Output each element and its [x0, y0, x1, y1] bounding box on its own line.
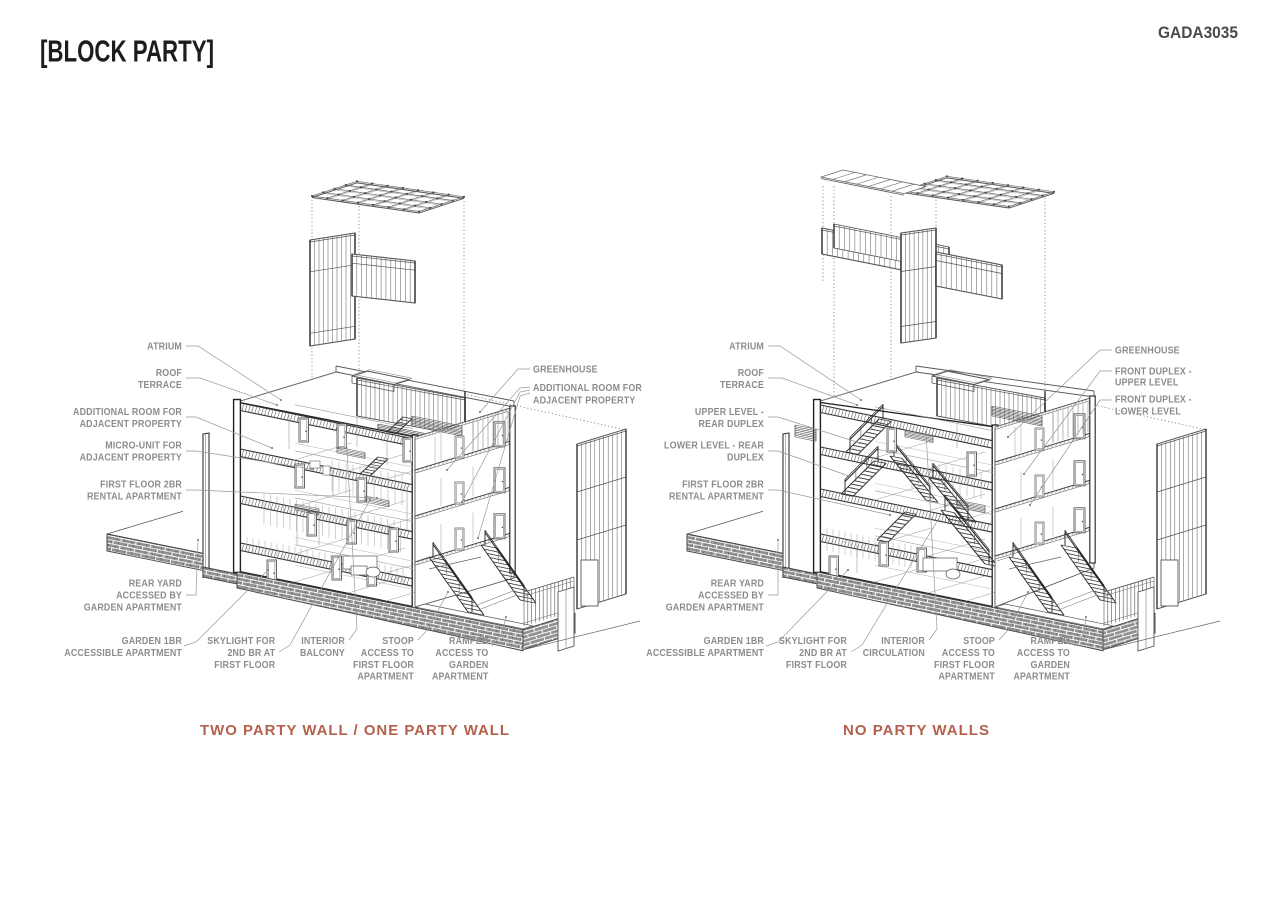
svg-text:SKYLIGHT FOR: SKYLIGHT FOR	[207, 636, 275, 648]
svg-text:REAR YARD: REAR YARD	[711, 578, 764, 590]
svg-text:APARTMENT: APARTMENT	[357, 671, 414, 683]
svg-text:2ND BR AT: 2ND BR AT	[227, 647, 275, 659]
svg-text:ADDITIONAL ROOM FOR: ADDITIONAL ROOM FOR	[73, 407, 182, 419]
svg-text:INTERIOR: INTERIOR	[881, 636, 925, 648]
svg-text:STOOP: STOOP	[963, 636, 995, 648]
svg-text:FIRST FLOOR: FIRST FLOOR	[934, 659, 995, 671]
svg-text:FIRST FLOOR: FIRST FLOOR	[214, 659, 275, 671]
svg-text:MICRO-UNIT FOR: MICRO-UNIT FOR	[105, 440, 182, 452]
svg-text:GREENHOUSE: GREENHOUSE	[1115, 345, 1180, 357]
svg-text:RENTAL APARTMENT: RENTAL APARTMENT	[87, 491, 182, 503]
svg-text:[BLOCK PARTY]: [BLOCK PARTY]	[40, 34, 214, 69]
svg-text:APARTMENT: APARTMENT	[938, 671, 995, 683]
svg-text:GARDEN 1BR: GARDEN 1BR	[122, 636, 182, 648]
svg-text:FIRST FLOOR: FIRST FLOOR	[786, 659, 847, 671]
svg-text:GARDEN APARTMENT: GARDEN APARTMENT	[666, 602, 764, 614]
svg-text:ACCESS TO: ACCESS TO	[435, 647, 488, 659]
svg-text:RENTAL APARTMENT: RENTAL APARTMENT	[669, 491, 764, 503]
svg-text:ACCESSIBLE APARTMENT: ACCESSIBLE APARTMENT	[646, 647, 764, 659]
svg-text:NO PARTY WALLS: NO PARTY WALLS	[843, 722, 990, 739]
svg-text:TERRACE: TERRACE	[720, 379, 764, 391]
svg-text:ACCESSIBLE APARTMENT: ACCESSIBLE APARTMENT	[64, 647, 182, 659]
svg-text:GARDEN: GARDEN	[1031, 659, 1070, 671]
svg-text:REAR DUPLEX: REAR DUPLEX	[699, 418, 765, 430]
svg-text:ADDITIONAL ROOM FOR: ADDITIONAL ROOM FOR	[533, 383, 642, 395]
svg-text:GARDEN APARTMENT: GARDEN APARTMENT	[84, 602, 182, 614]
svg-text:CIRCULATION: CIRCULATION	[863, 647, 925, 659]
svg-text:ROOF: ROOF	[156, 368, 182, 380]
svg-text:ACCESSED BY: ACCESSED BY	[698, 590, 764, 602]
svg-text:BALCONY: BALCONY	[300, 647, 345, 659]
svg-text:ACCESS TO: ACCESS TO	[361, 647, 414, 659]
svg-text:APARTMENT: APARTMENT	[1013, 671, 1070, 683]
svg-text:ADJACENT PROPERTY: ADJACENT PROPERTY	[80, 452, 183, 464]
svg-text:ATRIUM: ATRIUM	[729, 341, 764, 353]
svg-text:FRONT DUPLEX -: FRONT DUPLEX -	[1115, 394, 1192, 406]
svg-text:ACCESS TO: ACCESS TO	[1017, 647, 1070, 659]
svg-text:ADJACENT PROPERTY: ADJACENT PROPERTY	[533, 395, 636, 407]
svg-text:ATRIUM: ATRIUM	[147, 341, 182, 353]
svg-text:UPPER LEVEL -: UPPER LEVEL -	[695, 407, 764, 419]
svg-text:TWO PARTY WALL / ONE PARTY WAL: TWO PARTY WALL / ONE PARTY WALL	[200, 722, 510, 739]
svg-text:STOOP: STOOP	[382, 636, 414, 648]
svg-text:ADJACENT PROPERTY: ADJACENT PROPERTY	[80, 418, 183, 430]
svg-text:RAMPED: RAMPED	[449, 636, 488, 648]
svg-text:ROOF: ROOF	[738, 368, 764, 380]
svg-text:TERRACE: TERRACE	[138, 379, 182, 391]
svg-text:FRONT DUPLEX -: FRONT DUPLEX -	[1115, 366, 1192, 378]
svg-text:LOWER LEVEL - REAR: LOWER LEVEL - REAR	[664, 440, 764, 452]
svg-text:INTERIOR: INTERIOR	[301, 636, 345, 648]
svg-text:GADA3035: GADA3035	[1158, 23, 1238, 42]
svg-text:APARTMENT: APARTMENT	[432, 671, 489, 683]
svg-text:ACCESSED BY: ACCESSED BY	[116, 590, 182, 602]
svg-text:FIRST FLOOR 2BR: FIRST FLOOR 2BR	[100, 479, 182, 491]
svg-text:RAMPED: RAMPED	[1031, 636, 1070, 648]
svg-text:FIRST FLOOR: FIRST FLOOR	[353, 659, 414, 671]
svg-text:GREENHOUSE: GREENHOUSE	[533, 364, 598, 376]
svg-text:UPPER LEVEL: UPPER LEVEL	[1115, 377, 1178, 389]
svg-text:FIRST FLOOR 2BR: FIRST FLOOR 2BR	[682, 479, 764, 491]
svg-text:LOWER LEVEL: LOWER LEVEL	[1115, 406, 1181, 418]
svg-text:REAR YARD: REAR YARD	[129, 578, 182, 590]
svg-text:GARDEN 1BR: GARDEN 1BR	[704, 636, 764, 648]
svg-text:ACCESS TO: ACCESS TO	[942, 647, 995, 659]
svg-text:2ND BR AT: 2ND BR AT	[799, 647, 847, 659]
svg-text:SKYLIGHT FOR: SKYLIGHT FOR	[779, 636, 847, 648]
svg-text:DUPLEX: DUPLEX	[727, 452, 764, 464]
svg-text:GARDEN: GARDEN	[449, 659, 488, 671]
